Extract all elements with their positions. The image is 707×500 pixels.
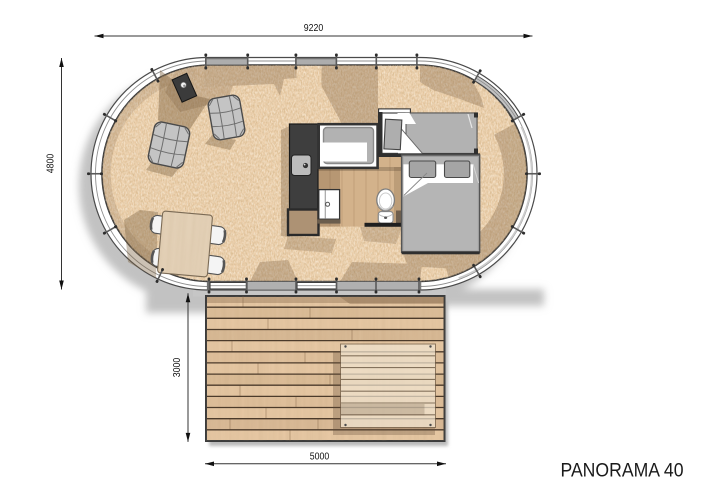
svg-text:PANORAMA 40: PANORAMA 40 — [561, 459, 684, 481]
svg-text:4800: 4800 — [46, 153, 57, 173]
svg-text:3000: 3000 — [172, 357, 183, 377]
svg-text:5000: 5000 — [310, 452, 330, 463]
svg-text:9220: 9220 — [304, 23, 324, 34]
